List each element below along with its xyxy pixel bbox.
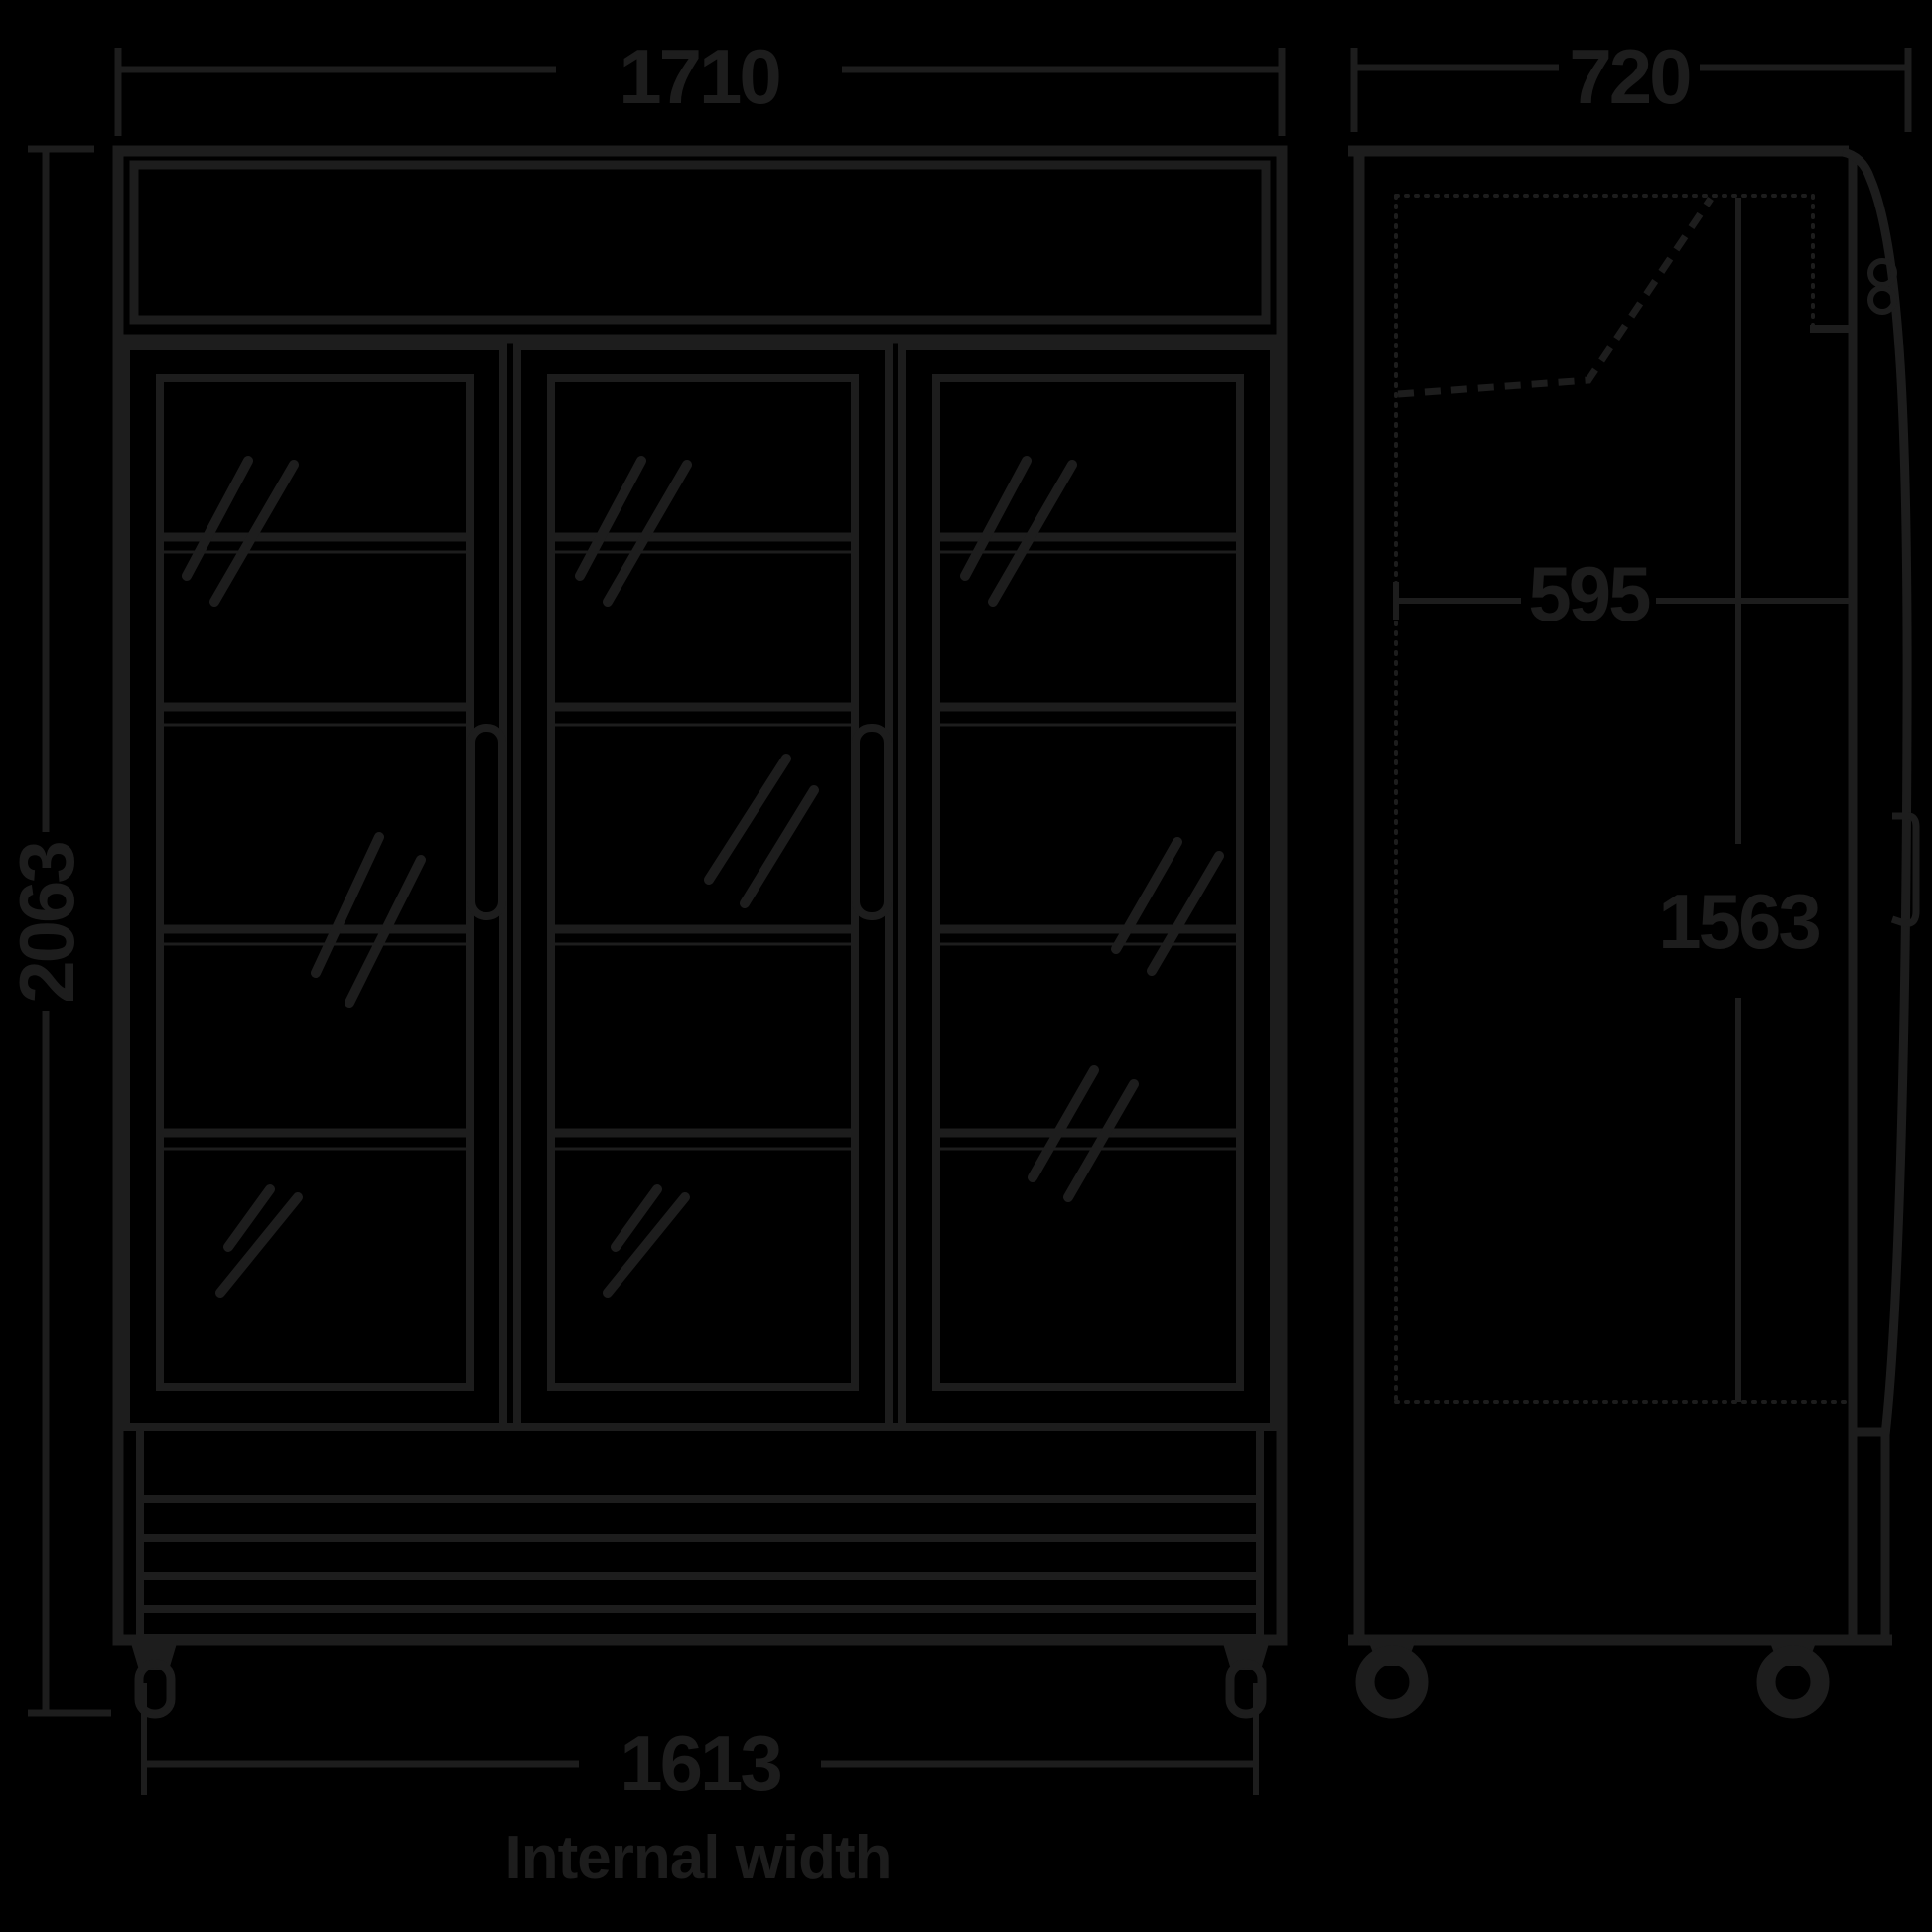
door-shelf-lines (551, 537, 855, 1149)
glass-reflection-marks (965, 461, 1219, 1197)
door-1-handle (471, 728, 502, 916)
glass-reflection-marks (187, 461, 421, 1293)
front-header-panel (134, 165, 1266, 320)
side-internal-depth-value: 595 (1528, 550, 1650, 637)
front-base-grille (140, 1427, 1260, 1638)
door-frame (126, 346, 503, 1427)
glass-reflection-marks (580, 461, 814, 1293)
door-frame (902, 346, 1274, 1427)
internal-width-value: 1613 (620, 1720, 780, 1807)
side-view: 720 595 1563 (1348, 33, 1916, 1709)
front-view: 1710 2063 1613 Internal width (3, 33, 1282, 1892)
door-shelf-lines (936, 537, 1240, 1149)
dimension-front-width: 1710 (118, 33, 1282, 136)
dimension-internal-height: 1563 (1658, 198, 1819, 1402)
front-caster-left (130, 1640, 178, 1714)
side-caster-left (1365, 1640, 1419, 1709)
front-door-2 (517, 346, 889, 1427)
side-door-profile (1843, 152, 1916, 1640)
front-door-3 (902, 346, 1274, 1427)
door-shelf-lines (160, 537, 470, 1149)
dimension-internal-width: 1613 Internal width (144, 1683, 1256, 1892)
side-internal-height-value: 1563 (1658, 878, 1819, 965)
front-width-value: 1710 (619, 33, 779, 120)
dimension-side-depth: 720 (1354, 33, 1908, 132)
diagram-canvas: 1710 2063 1613 Internal width (0, 0, 1932, 1932)
air-duct-line (1398, 199, 1711, 394)
door-2-handle (856, 728, 888, 916)
door-glass (551, 378, 855, 1387)
door-glass (936, 378, 1240, 1387)
front-door-1 (126, 346, 503, 1427)
front-caster-right (1222, 1640, 1270, 1714)
dimension-front-height: 2063 (3, 149, 111, 1713)
fridge-dimension-diagram: 1710 2063 1613 Internal width (0, 0, 1932, 1932)
side-depth-value: 720 (1569, 33, 1690, 120)
door-frame (517, 346, 889, 1427)
side-caster-right (1766, 1640, 1820, 1709)
internal-width-caption: Internal width (505, 1824, 892, 1892)
interior-liner (1396, 196, 1849, 1402)
front-height-value: 2063 (3, 843, 90, 1004)
dimension-internal-depth: 595 (1396, 550, 1853, 637)
